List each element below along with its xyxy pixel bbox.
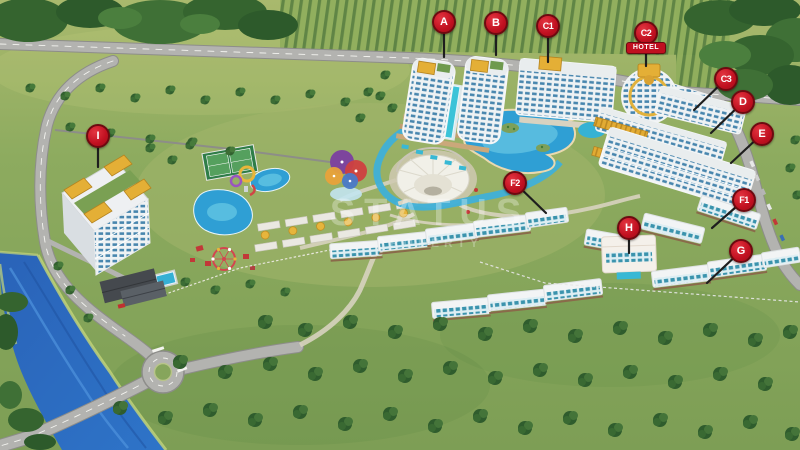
marker-C3: C3 — [714, 67, 738, 91]
masterplan-render — [0, 0, 800, 450]
marker-H: H — [617, 216, 641, 240]
marker-F1: F1 — [732, 188, 756, 212]
marker-D: D — [731, 90, 755, 114]
marker-A: A — [432, 10, 456, 34]
marker-C1: C1 — [536, 14, 560, 38]
marker-G: G — [729, 239, 753, 263]
marker-B: B — [484, 11, 508, 35]
marker-F2: F2 — [503, 171, 527, 195]
marker-E: E — [750, 122, 774, 146]
masterplan-scene: A B C1 C2 HOTEL C3 D E F1 F2 G H I STATU… — [0, 0, 800, 450]
building-b — [457, 56, 509, 144]
hotel-badge: HOTEL — [626, 42, 666, 54]
marker-I: I — [86, 124, 110, 148]
